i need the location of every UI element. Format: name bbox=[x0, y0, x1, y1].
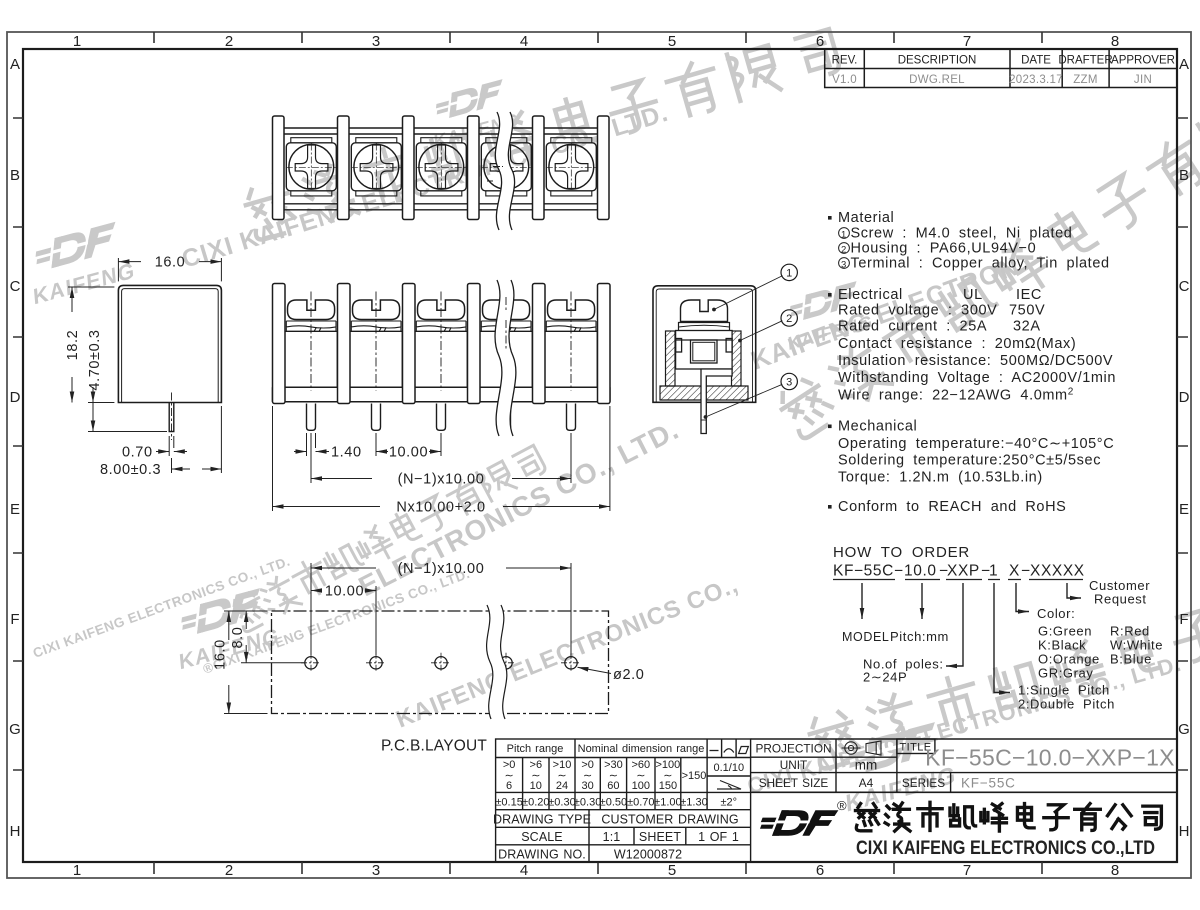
svg-text:KF−55C: KF−55C bbox=[961, 776, 1016, 791]
svg-text:UNIT: UNIT bbox=[780, 758, 808, 772]
svg-text:2: 2 bbox=[841, 244, 847, 255]
svg-text:ZZM: ZZM bbox=[1073, 74, 1098, 86]
svg-text:F: F bbox=[1179, 611, 1188, 628]
svg-text:G:Green: G:Green bbox=[1038, 624, 1092, 639]
svg-text:3: 3 bbox=[372, 862, 380, 879]
svg-text:A: A bbox=[1179, 56, 1189, 73]
svg-text:APPROVER: APPROVER bbox=[1111, 55, 1175, 67]
svg-text:mm: mm bbox=[855, 758, 878, 773]
svg-text:G: G bbox=[1178, 721, 1190, 738]
svg-text:−: − bbox=[894, 563, 904, 580]
svg-text:±0.20: ±0.20 bbox=[522, 797, 549, 809]
svg-text:7: 7 bbox=[963, 862, 971, 879]
svg-text:0.70: 0.70 bbox=[122, 445, 153, 461]
svg-text:6: 6 bbox=[816, 33, 824, 50]
svg-text:Color:: Color: bbox=[1037, 606, 1075, 621]
svg-text:1 OF 1: 1 OF 1 bbox=[698, 830, 739, 844]
svg-text:GR:Gray: GR:Gray bbox=[1038, 666, 1093, 681]
svg-text:1: 1 bbox=[73, 862, 81, 879]
svg-text:C: C bbox=[10, 278, 21, 295]
svg-text:Mechanical: Mechanical bbox=[838, 419, 917, 435]
svg-text:PROJECTION: PROJECTION bbox=[755, 742, 831, 756]
svg-text:Soldering temperature:250°C±5/: Soldering temperature:250°C±5/5sec bbox=[838, 453, 1101, 469]
svg-text:R:Red: R:Red bbox=[1110, 624, 1150, 639]
svg-text:REV.: REV. bbox=[832, 55, 858, 67]
svg-text:Conform to REACH and RoHS: Conform to REACH and RoHS bbox=[838, 499, 1066, 515]
svg-text:6: 6 bbox=[816, 862, 824, 879]
svg-text:P.C.B.LAYOUT: P.C.B.LAYOUT bbox=[381, 738, 487, 755]
svg-text:8: 8 bbox=[1111, 33, 1119, 50]
svg-text:5: 5 bbox=[668, 33, 676, 50]
svg-text:2∼24P: 2∼24P bbox=[863, 670, 907, 685]
svg-text:HOW TO ORDER: HOW TO ORDER bbox=[833, 544, 970, 561]
svg-text:24: 24 bbox=[556, 780, 568, 792]
svg-text:(N−1)x10.00: (N−1)x10.00 bbox=[398, 561, 485, 577]
svg-text:±0.30: ±0.30 bbox=[574, 797, 601, 809]
svg-text:O:Orange: O:Orange bbox=[1038, 652, 1100, 667]
svg-text:F: F bbox=[10, 611, 19, 628]
svg-text:MODEL: MODEL bbox=[842, 630, 889, 644]
svg-text:®: ® bbox=[837, 798, 847, 813]
svg-text:±0.30: ±0.30 bbox=[548, 797, 575, 809]
svg-text:32A: 32A bbox=[1013, 319, 1041, 335]
svg-text:10.0: 10.0 bbox=[904, 563, 937, 580]
svg-text:XXP: XXP bbox=[947, 563, 980, 580]
svg-text:1:1: 1:1 bbox=[603, 830, 621, 844]
svg-text:5: 5 bbox=[668, 862, 676, 879]
svg-text:Electrical: Electrical bbox=[838, 287, 903, 303]
svg-text:18.2: 18.2 bbox=[65, 330, 81, 361]
svg-text:Material: Material bbox=[838, 210, 894, 226]
svg-text:SHEET: SHEET bbox=[639, 830, 681, 844]
svg-text:H: H bbox=[1179, 823, 1190, 840]
svg-text:KF−55C−10.0−XXP−1X: KF−55C−10.0−XXP−1X bbox=[925, 745, 1175, 771]
svg-text:Screw : M4.0 steel, Ni plated: Screw : M4.0 steel, Ni plated bbox=[851, 226, 1073, 242]
svg-text:16.0: 16.0 bbox=[213, 639, 229, 670]
svg-text:±1.00: ±1.00 bbox=[654, 797, 681, 809]
svg-text:1: 1 bbox=[786, 267, 792, 279]
svg-text:±2°: ±2° bbox=[721, 797, 738, 809]
svg-text:X: X bbox=[1009, 563, 1020, 580]
svg-text:B: B bbox=[1179, 167, 1189, 184]
svg-text:Rated current : 25A: Rated current : 25A bbox=[838, 319, 987, 335]
svg-text:W12000872: W12000872 bbox=[614, 848, 682, 862]
svg-text:2023.3.17: 2023.3.17 bbox=[1009, 74, 1063, 86]
svg-text:30: 30 bbox=[581, 780, 593, 792]
svg-text:Terminal : Copper alloy, Tin p: Terminal : Copper alloy, Tin plated bbox=[851, 256, 1110, 272]
svg-text:±1.30: ±1.30 bbox=[680, 797, 707, 809]
svg-text:>150: >150 bbox=[682, 770, 707, 782]
svg-text:4.70±0.3: 4.70±0.3 bbox=[87, 329, 103, 390]
svg-text:16.0: 16.0 bbox=[155, 255, 186, 271]
svg-text:Pitch range: Pitch range bbox=[507, 743, 564, 755]
svg-text:SCALE: SCALE bbox=[521, 830, 563, 844]
svg-text:C: C bbox=[1179, 278, 1190, 295]
svg-text:3: 3 bbox=[841, 259, 847, 270]
svg-text:8.00±0.3: 8.00±0.3 bbox=[100, 462, 161, 478]
svg-text:B:Blue: B:Blue bbox=[1110, 652, 1152, 667]
svg-text:JIN: JIN bbox=[1134, 74, 1152, 86]
svg-text:KF−55C: KF−55C bbox=[833, 563, 894, 580]
svg-text:V1.0: V1.0 bbox=[832, 74, 857, 86]
svg-text:2:Double Pitch: 2:Double Pitch bbox=[1018, 697, 1115, 712]
svg-text:3: 3 bbox=[372, 33, 380, 50]
svg-text:2: 2 bbox=[225, 862, 233, 879]
svg-text:CUSTOMER DRAWING: CUSTOMER DRAWING bbox=[601, 813, 738, 827]
svg-text:D: D bbox=[10, 389, 21, 406]
svg-text:E: E bbox=[10, 501, 20, 518]
svg-text:7: 7 bbox=[963, 33, 971, 50]
svg-text:Nx10.00+2.0: Nx10.00+2.0 bbox=[396, 500, 485, 516]
svg-text:ø2.0: ø2.0 bbox=[613, 667, 644, 683]
svg-text:Housing : PA66,UL94V−0: Housing : PA66,UL94V−0 bbox=[851, 241, 1037, 257]
svg-text:DRAWING TYPE: DRAWING TYPE bbox=[493, 813, 591, 827]
svg-text:±0.50: ±0.50 bbox=[600, 797, 627, 809]
svg-text:W:White: W:White bbox=[1110, 638, 1163, 653]
svg-text:UL: UL bbox=[963, 287, 983, 303]
svg-text:1.40: 1.40 bbox=[331, 445, 362, 461]
svg-text:0.1/10: 0.1/10 bbox=[714, 762, 745, 774]
svg-text:150: 150 bbox=[659, 780, 677, 792]
svg-text:CIXI KAIFENG ELECTRONICS CO.,L: CIXI KAIFENG ELECTRONICS CO.,LTD bbox=[856, 838, 1155, 859]
svg-text:1: 1 bbox=[841, 229, 847, 240]
svg-text:Pitch:mm: Pitch:mm bbox=[890, 629, 949, 644]
svg-text:Rated voltage : 300V: Rated voltage : 300V bbox=[838, 303, 997, 319]
svg-text:4: 4 bbox=[520, 862, 528, 879]
svg-text:D: D bbox=[1179, 389, 1190, 406]
svg-text:±0.15: ±0.15 bbox=[495, 797, 522, 809]
svg-text:Contact resistance : 20mΩ(Max): Contact resistance : 20mΩ(Max) bbox=[838, 336, 1076, 352]
svg-text:XXXXX: XXXXX bbox=[1030, 563, 1085, 580]
svg-text:±0.70: ±0.70 bbox=[627, 797, 654, 809]
svg-text:Insulation resistance: 500MΩ/D: Insulation resistance: 500MΩ/DC500V bbox=[838, 353, 1113, 369]
svg-text:DRAWING NO.: DRAWING NO. bbox=[498, 848, 586, 862]
svg-text:10.00: 10.00 bbox=[389, 445, 428, 461]
svg-text:B: B bbox=[10, 167, 20, 184]
svg-text:Request: Request bbox=[1094, 592, 1147, 607]
svg-text:A: A bbox=[10, 56, 20, 73]
svg-text:SERIES: SERIES bbox=[902, 776, 945, 790]
svg-text:Nominal dimension range: Nominal dimension range bbox=[578, 743, 705, 755]
svg-text:8: 8 bbox=[1111, 862, 1119, 879]
svg-text:SHEET SIZE: SHEET SIZE bbox=[759, 776, 829, 790]
svg-text:1: 1 bbox=[989, 563, 998, 580]
svg-text:100: 100 bbox=[632, 780, 650, 792]
svg-text:60: 60 bbox=[607, 780, 619, 792]
svg-text:1: 1 bbox=[73, 33, 81, 50]
svg-text:A4: A4 bbox=[859, 776, 874, 790]
svg-text:3: 3 bbox=[786, 377, 792, 389]
svg-text:Withstanding Voltage : AC2000V: Withstanding Voltage : AC2000V/1min bbox=[838, 370, 1116, 386]
svg-text:2: 2 bbox=[225, 33, 233, 50]
svg-text:DESCRIPTION: DESCRIPTION bbox=[898, 55, 977, 67]
svg-text:G: G bbox=[9, 721, 21, 738]
svg-text:2: 2 bbox=[786, 313, 792, 325]
svg-text:10: 10 bbox=[530, 780, 542, 792]
svg-text:750V: 750V bbox=[1009, 303, 1045, 319]
svg-text:IEC: IEC bbox=[1016, 287, 1042, 303]
svg-text:DRAFTER: DRAFTER bbox=[1058, 55, 1112, 67]
svg-text:(N−1)x10.00: (N−1)x10.00 bbox=[398, 472, 485, 488]
svg-text:Operating temperature:−40°C∼+1: Operating temperature:−40°C∼+105°C bbox=[838, 436, 1114, 452]
svg-text:Wire range: 22−12AWG 4.0mm2: Wire range: 22−12AWG 4.0mm2 bbox=[838, 387, 1074, 404]
svg-text:8.0: 8.0 bbox=[230, 627, 246, 649]
svg-text:6: 6 bbox=[506, 780, 512, 792]
svg-text:K:Black: K:Black bbox=[1038, 638, 1086, 653]
svg-text:Torque: 1.2N.m (10.53Lb.in): Torque: 1.2N.m (10.53Lb.in) bbox=[838, 470, 1043, 486]
svg-text:1:Single Pitch: 1:Single Pitch bbox=[1018, 683, 1110, 698]
svg-text:DWG.REL: DWG.REL bbox=[909, 74, 965, 86]
svg-text:E: E bbox=[1179, 501, 1189, 518]
svg-text:4: 4 bbox=[520, 33, 528, 50]
svg-text:H: H bbox=[10, 823, 21, 840]
svg-text:10.00: 10.00 bbox=[325, 584, 364, 600]
svg-text:DATE: DATE bbox=[1021, 55, 1051, 67]
